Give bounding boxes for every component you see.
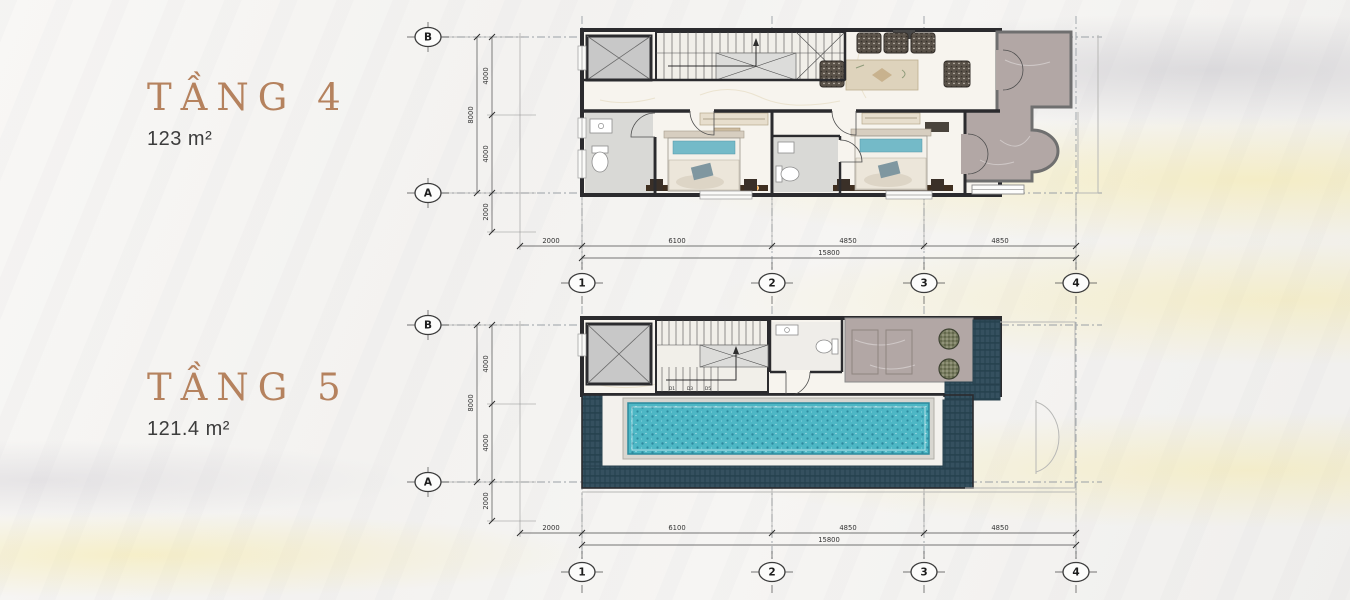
svg-text:2: 2 — [768, 567, 775, 579]
swimming-pool — [628, 403, 929, 454]
double-bed — [851, 129, 931, 190]
wardrobe — [862, 113, 920, 124]
armchair — [820, 61, 844, 87]
armchair — [944, 61, 970, 87]
dim-h-seg3: 4850 — [839, 237, 856, 245]
stair-step-label: D3 — [687, 386, 693, 392]
grid-bubble-4: 4 — [1055, 551, 1097, 593]
svg-text:3: 3 — [920, 567, 927, 579]
elevator-symbol — [587, 324, 651, 384]
grid-bubble-A: A — [407, 467, 449, 497]
svg-text:4: 4 — [1072, 567, 1079, 579]
dim-h-seg2: 6100 — [668, 237, 685, 245]
armchair — [884, 33, 908, 53]
dim-h-seg3: 4850 — [839, 524, 856, 532]
bathroom-2 — [774, 138, 838, 192]
armchair — [911, 33, 935, 53]
dim-v-below: 2000 — [482, 203, 490, 220]
floor4-plan: 8000 4000 4000 2000 2000 6100 4850 4850 … — [407, 16, 1102, 304]
floor4-building — [578, 30, 1098, 199]
staircase-symbol: D1 D3 D5 — [656, 320, 768, 392]
double-bed — [664, 131, 744, 191]
grid-bubble-2: 2 — [751, 551, 793, 593]
grid-bubble-2: 2 — [751, 262, 793, 304]
toilet — [781, 167, 799, 181]
svg-text:1: 1 — [578, 567, 585, 579]
svg-text:A: A — [424, 188, 433, 200]
dim-h-seg4: 4850 — [991, 524, 1008, 532]
sink — [776, 325, 798, 335]
svg-text:3: 3 — [920, 278, 927, 290]
bathroom-1 — [585, 113, 653, 193]
grid-bubble-1: 1 — [561, 551, 603, 593]
nightstand — [744, 179, 757, 191]
elevator-symbol — [587, 36, 651, 80]
svg-text:B: B — [424, 32, 432, 44]
dim-h-seg1: 2000 — [542, 237, 559, 245]
svg-text:4: 4 — [1072, 278, 1079, 290]
toilet-tank — [832, 339, 838, 354]
svg-text:B: B — [424, 320, 432, 332]
grid-bubble-3: 3 — [903, 262, 945, 304]
stair-step-label: D1 — [669, 386, 675, 392]
windows — [578, 334, 586, 356]
dim-h-seg4: 4850 — [991, 237, 1008, 245]
planter-chair — [939, 359, 959, 379]
dim-v-total: 8000 — [467, 106, 475, 123]
sink — [590, 119, 612, 133]
dim-v-seg1: 4000 — [482, 355, 490, 372]
svg-text:1: 1 — [578, 278, 585, 290]
dim-v-seg1: 4000 — [482, 67, 490, 84]
toilet — [592, 152, 608, 172]
sink — [778, 142, 794, 153]
dim-h-total: 15800 — [818, 249, 840, 257]
dim-v-below: 2000 — [482, 492, 490, 509]
dim-v-seg2: 4000 — [482, 434, 490, 451]
dim-h-seg2: 6100 — [668, 524, 685, 532]
grid-bubble-B: B — [407, 310, 449, 340]
floor5-plan: 8000 4000 4000 2000 2000 6100 4850 4850 … — [407, 306, 1102, 593]
grid-bubble-A: A — [407, 178, 449, 208]
planter-chair — [939, 329, 959, 349]
grid-bubble-1: 1 — [561, 262, 603, 304]
grid-bubble-B: B — [407, 22, 449, 52]
grid-bubble-3: 3 — [903, 551, 945, 593]
armchair — [857, 33, 881, 53]
dim-v-seg2: 4000 — [482, 145, 490, 162]
page-background: TẦNG 4 123 m² TẦNG 5 121.4 m² — [0, 0, 1350, 600]
svg-text:2: 2 — [768, 278, 775, 290]
nightstand — [931, 179, 944, 191]
staircase-symbol — [656, 32, 845, 80]
grid-bubble-4: 4 — [1055, 262, 1097, 304]
dim-h-total: 15800 — [818, 536, 840, 544]
stair-step-label: D5 — [705, 386, 711, 392]
svg-text:A: A — [424, 477, 433, 489]
dim-h-seg1: 2000 — [542, 524, 559, 532]
dim-v-total: 8000 — [467, 394, 475, 411]
toilet — [816, 340, 832, 353]
floor5-building: D1 D3 D5 — [578, 318, 1075, 492]
floorplan-canvas: 8000 4000 4000 2000 2000 6100 4850 4850 … — [0, 0, 1350, 600]
